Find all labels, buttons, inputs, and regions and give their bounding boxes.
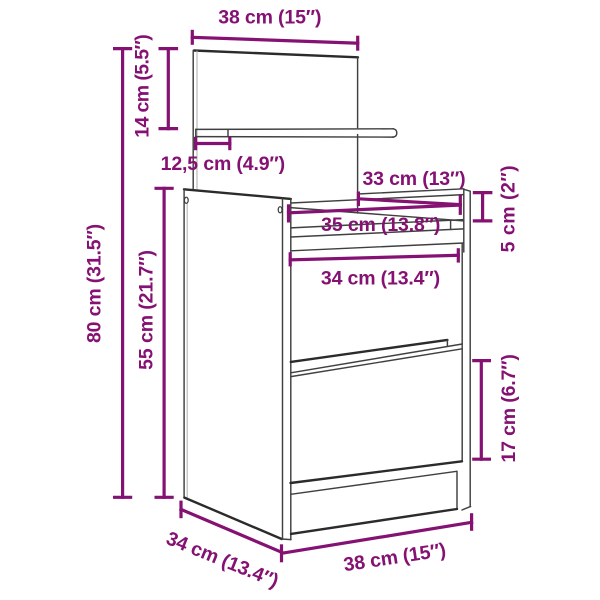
svg-text:35 cm (13.8″): 35 cm (13.8″) <box>321 214 440 236</box>
svg-text:33 cm (13″): 33 cm (13″) <box>362 168 465 190</box>
svg-text:17 cm (6.7″): 17 cm (6.7″) <box>498 354 520 462</box>
svg-text:34 cm (13.4″): 34 cm (13.4″) <box>321 268 440 290</box>
svg-text:80 cm (31.5″): 80 cm (31.5″) <box>84 224 106 343</box>
svg-text:12,5 cm (4.9″): 12,5 cm (4.9″) <box>161 153 285 175</box>
svg-text:38 cm (15″): 38 cm (15″) <box>218 6 321 28</box>
svg-text:5 cm (2″): 5 cm (2″) <box>498 165 520 253</box>
svg-text:14 cm (5.5″): 14 cm (5.5″) <box>132 35 154 138</box>
svg-text:55 cm (21.7″): 55 cm (21.7″) <box>136 250 158 370</box>
